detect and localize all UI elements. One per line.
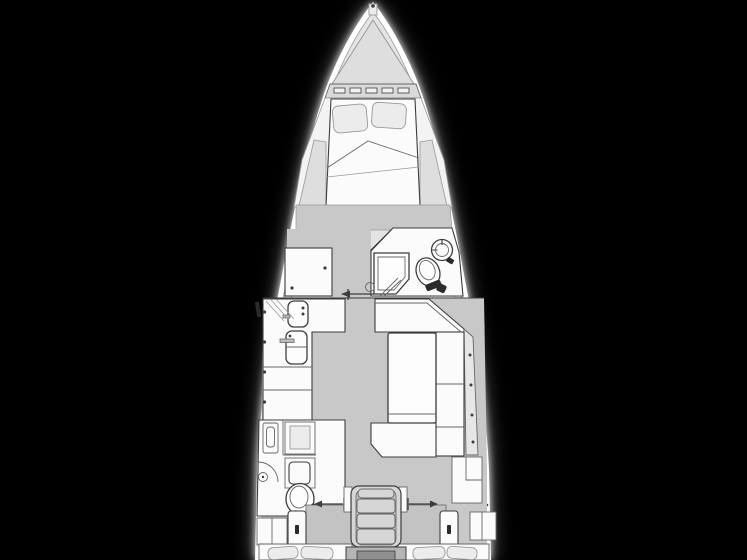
engine-hatch [346, 547, 406, 560]
aft-berth-pillow [268, 546, 299, 560]
port-aft-locker [257, 518, 287, 545]
settee-aft-bench [371, 423, 436, 457]
aft-berth-pillow [447, 546, 478, 560]
companionway-stairs [344, 486, 407, 560]
settee-side-bench [436, 332, 464, 456]
foredeck-hatch-band [325, 84, 421, 98]
aft-berth-starboard [398, 544, 489, 560]
forward-wardrobe [285, 248, 332, 296]
aft-head-cabinet [263, 423, 278, 453]
aft-cabin-port-cabinet [288, 511, 306, 548]
aft-berth-pillow [413, 546, 446, 560]
aft-berth-pillow [301, 546, 334, 560]
aft-berth-port [259, 544, 352, 560]
floor-plan-canvas [0, 0, 747, 560]
salon-table [388, 333, 436, 423]
aft-cabin-starboard-cabinet [440, 511, 458, 548]
aft-head-locker [285, 422, 315, 454]
yacht-floor-plan-drawing [0, 0, 747, 560]
